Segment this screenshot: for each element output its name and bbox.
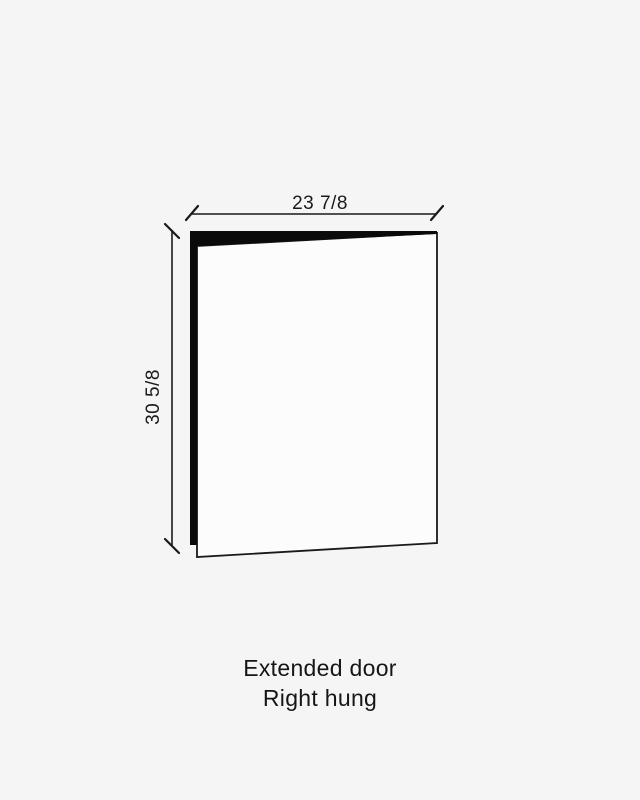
width-dimension-tick-left (186, 206, 198, 220)
width-dimension: 23 7/8 (186, 193, 443, 220)
page: { "colors": { "background": "#f5f5f5", "… (0, 0, 640, 800)
door-drawing (190, 231, 437, 557)
width-dimension-label: 23 7/8 (292, 193, 348, 214)
height-dimension-label: 30 5/8 (143, 369, 164, 425)
height-dimension: 30 5/8 (143, 224, 179, 553)
width-dimension-tick-right (431, 206, 443, 220)
door-front-face (197, 233, 437, 557)
caption-line2: Right hung (0, 683, 640, 713)
caption: Extended door Right hung (0, 653, 640, 713)
caption-line1: Extended door (0, 653, 640, 683)
